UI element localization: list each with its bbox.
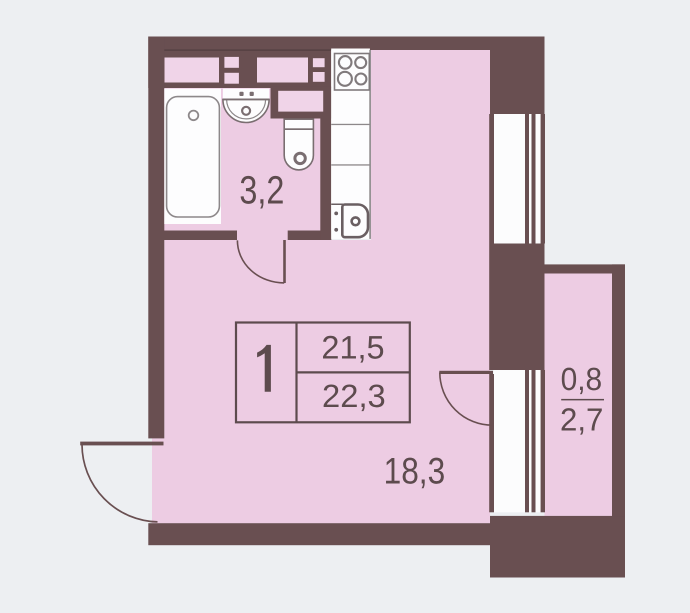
svg-text:2,7: 2,7 xyxy=(560,401,603,437)
svg-text:21,5: 21,5 xyxy=(321,330,384,366)
svg-text:18,3: 18,3 xyxy=(384,451,446,492)
svg-text:22,3: 22,3 xyxy=(322,378,386,414)
svg-text:3,2: 3,2 xyxy=(239,169,284,213)
svg-text:0,8: 0,8 xyxy=(561,361,603,397)
